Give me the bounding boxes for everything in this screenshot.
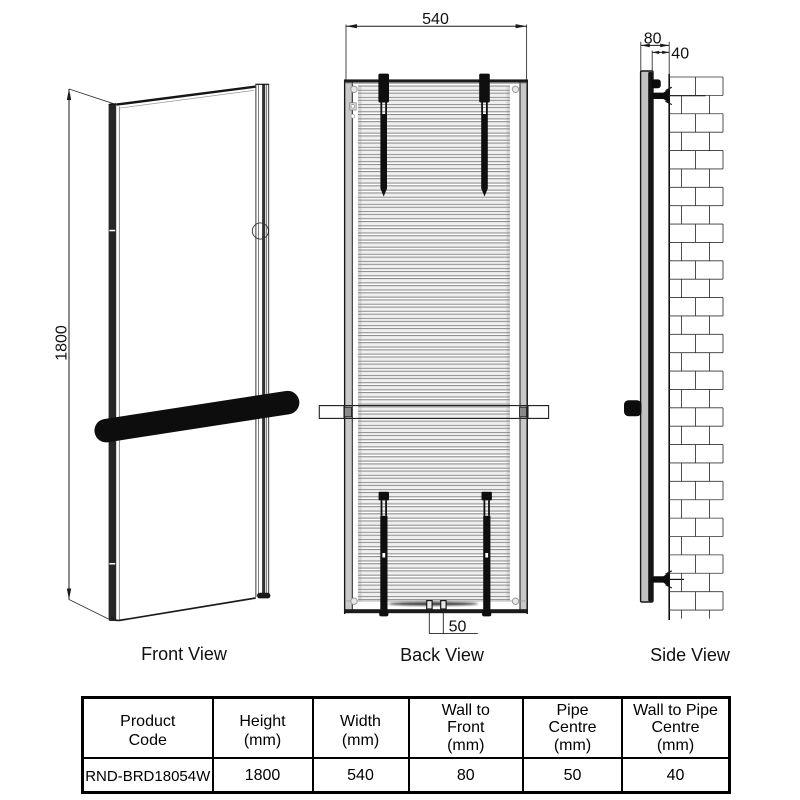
svg-text:40: 40 [671, 46, 689, 63]
svg-text:Front View: Front View [141, 644, 228, 664]
svg-text:1800: 1800 [53, 325, 70, 361]
svg-text:Side View: Side View [650, 645, 731, 665]
svg-text:80: 80 [644, 30, 662, 47]
svg-text:Back View: Back View [400, 645, 485, 665]
svg-text:540: 540 [422, 11, 449, 28]
svg-text:50: 50 [449, 619, 467, 636]
